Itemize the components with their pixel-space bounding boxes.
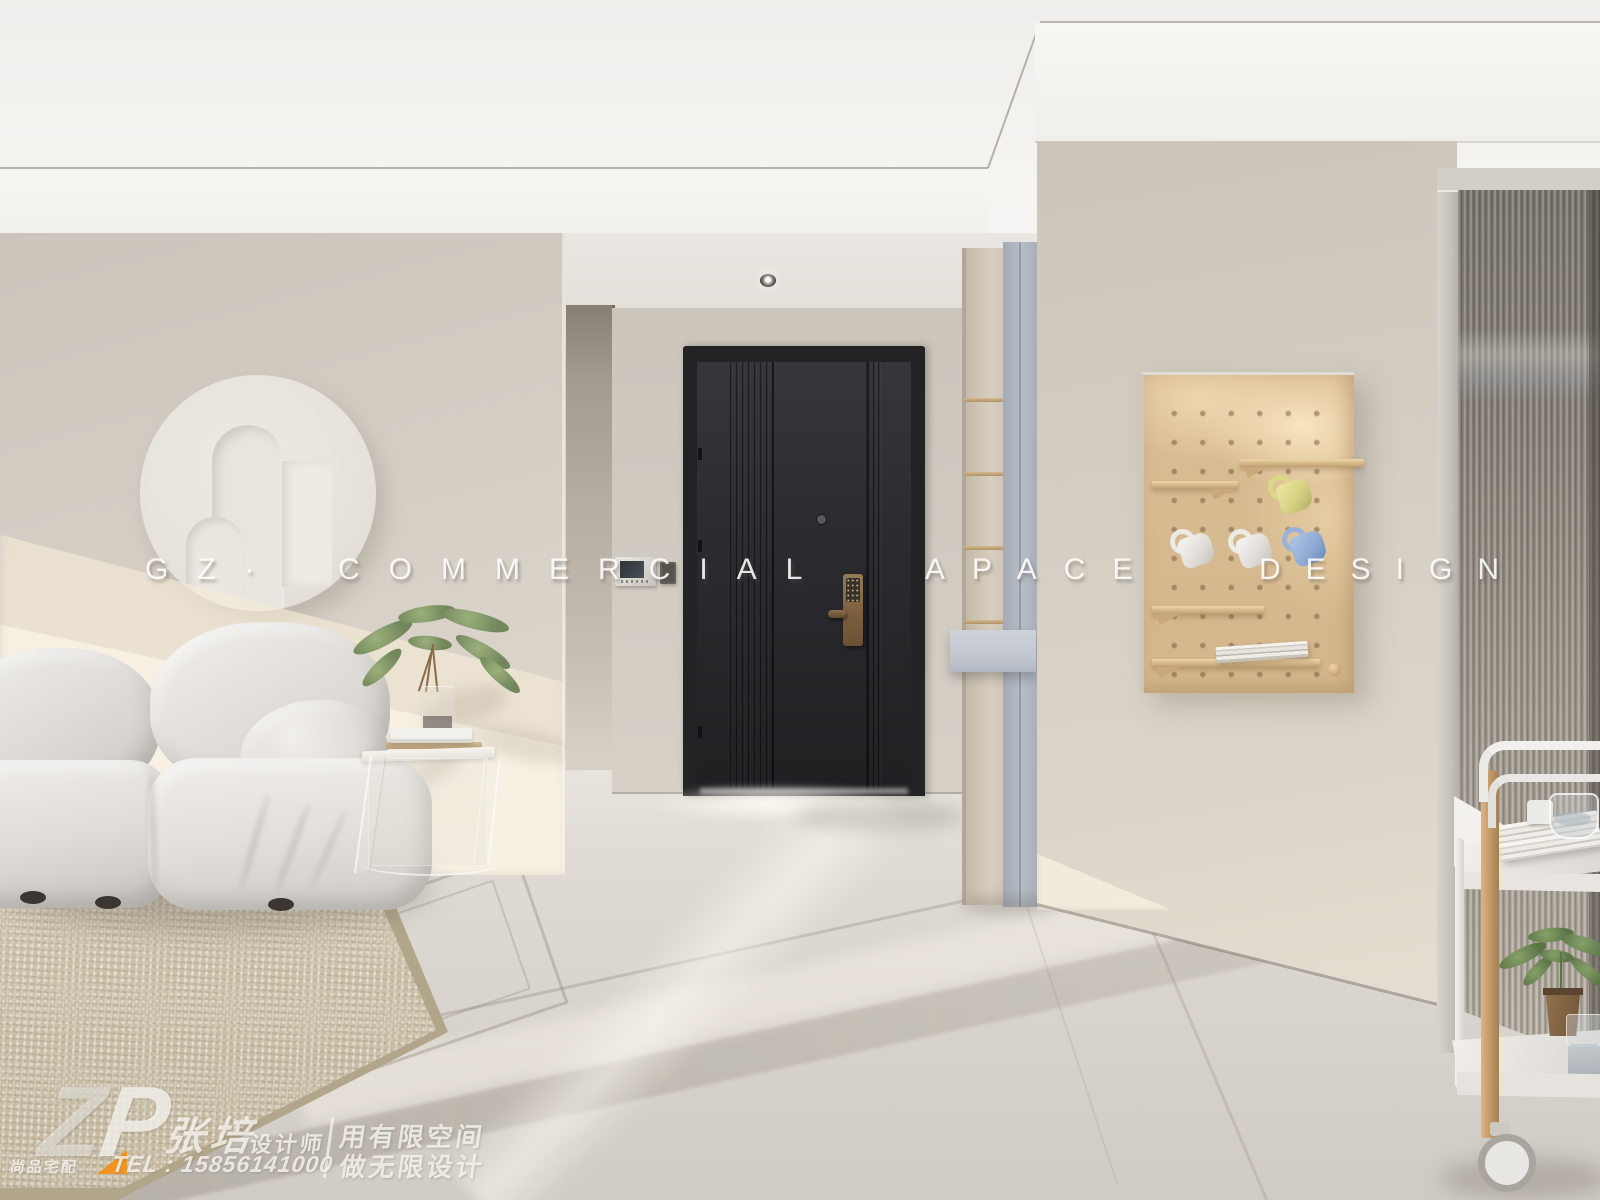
door-hinge	[698, 540, 702, 552]
logo-slogan-line2: 做无限设计	[337, 1147, 487, 1184]
ceiling-soffit-corner	[975, 20, 1041, 236]
niche-shelf	[964, 620, 1003, 624]
glass-partition-frame-top	[1437, 168, 1600, 192]
interior-render-scene: GZ· COMMERCIAL APACE DESIGN Z P 尚品宅配 张培 …	[0, 0, 1600, 1200]
recessed-downlight	[760, 274, 776, 287]
ceiling-soffit-right	[1035, 23, 1600, 143]
plant-stem	[1560, 952, 1562, 990]
hanging-mug-yellow	[1268, 475, 1316, 517]
sofa-foot	[95, 896, 121, 909]
logo-phone: TEL : 15856141000	[110, 1151, 335, 1178]
glass-tumbler	[1566, 1014, 1600, 1046]
trolley-handle	[1488, 774, 1600, 828]
plant-pot-rim	[1543, 988, 1583, 995]
niche-shelf	[964, 398, 1003, 402]
side-passage-opening	[566, 305, 615, 770]
door-peephole	[816, 514, 827, 525]
sofa-foot	[268, 898, 294, 911]
wood-pegboard	[1140, 372, 1354, 693]
relief-step-panel	[282, 461, 332, 587]
book	[390, 728, 472, 743]
door-fluted-panel	[868, 362, 883, 790]
floor-shadow	[795, 800, 965, 832]
pegboard-shelf	[1152, 481, 1238, 489]
acrylic-table-base	[360, 850, 500, 876]
caster-wheel	[1478, 1134, 1536, 1192]
door-handle	[828, 610, 846, 618]
glass-reflection	[1458, 328, 1600, 402]
door-hinge	[698, 726, 702, 738]
glass-edge-shadow	[1589, 190, 1600, 1050]
pegboard-shelf	[1152, 606, 1264, 614]
watermark-word: APACE	[925, 553, 1159, 589]
watermark-word: COMMERCIAL	[338, 553, 831, 589]
fluted-glass-partition	[1458, 190, 1600, 1062]
logo-company: 尚品宅配	[9, 1156, 80, 1177]
watermark-word: DESIGN	[1259, 553, 1524, 589]
door-panel-seam	[866, 362, 868, 790]
smart-lock-keypad	[846, 578, 860, 602]
sofa-foot	[20, 891, 46, 904]
cabinet-counter-ledge	[950, 630, 1036, 672]
pegboard-shelf	[1240, 459, 1364, 467]
door-hinge	[698, 448, 702, 460]
sofa-seat-cushion	[0, 760, 172, 908]
hanging-mug-white	[1170, 529, 1218, 571]
niche-shelf	[964, 546, 1003, 550]
watermark-prefix: GZ·	[145, 553, 284, 589]
niche-shelf	[964, 472, 1003, 476]
wood-knob	[1328, 663, 1341, 676]
ceiling-soffit-left	[0, 169, 988, 237]
trolley-tray-front	[1457, 1072, 1600, 1098]
